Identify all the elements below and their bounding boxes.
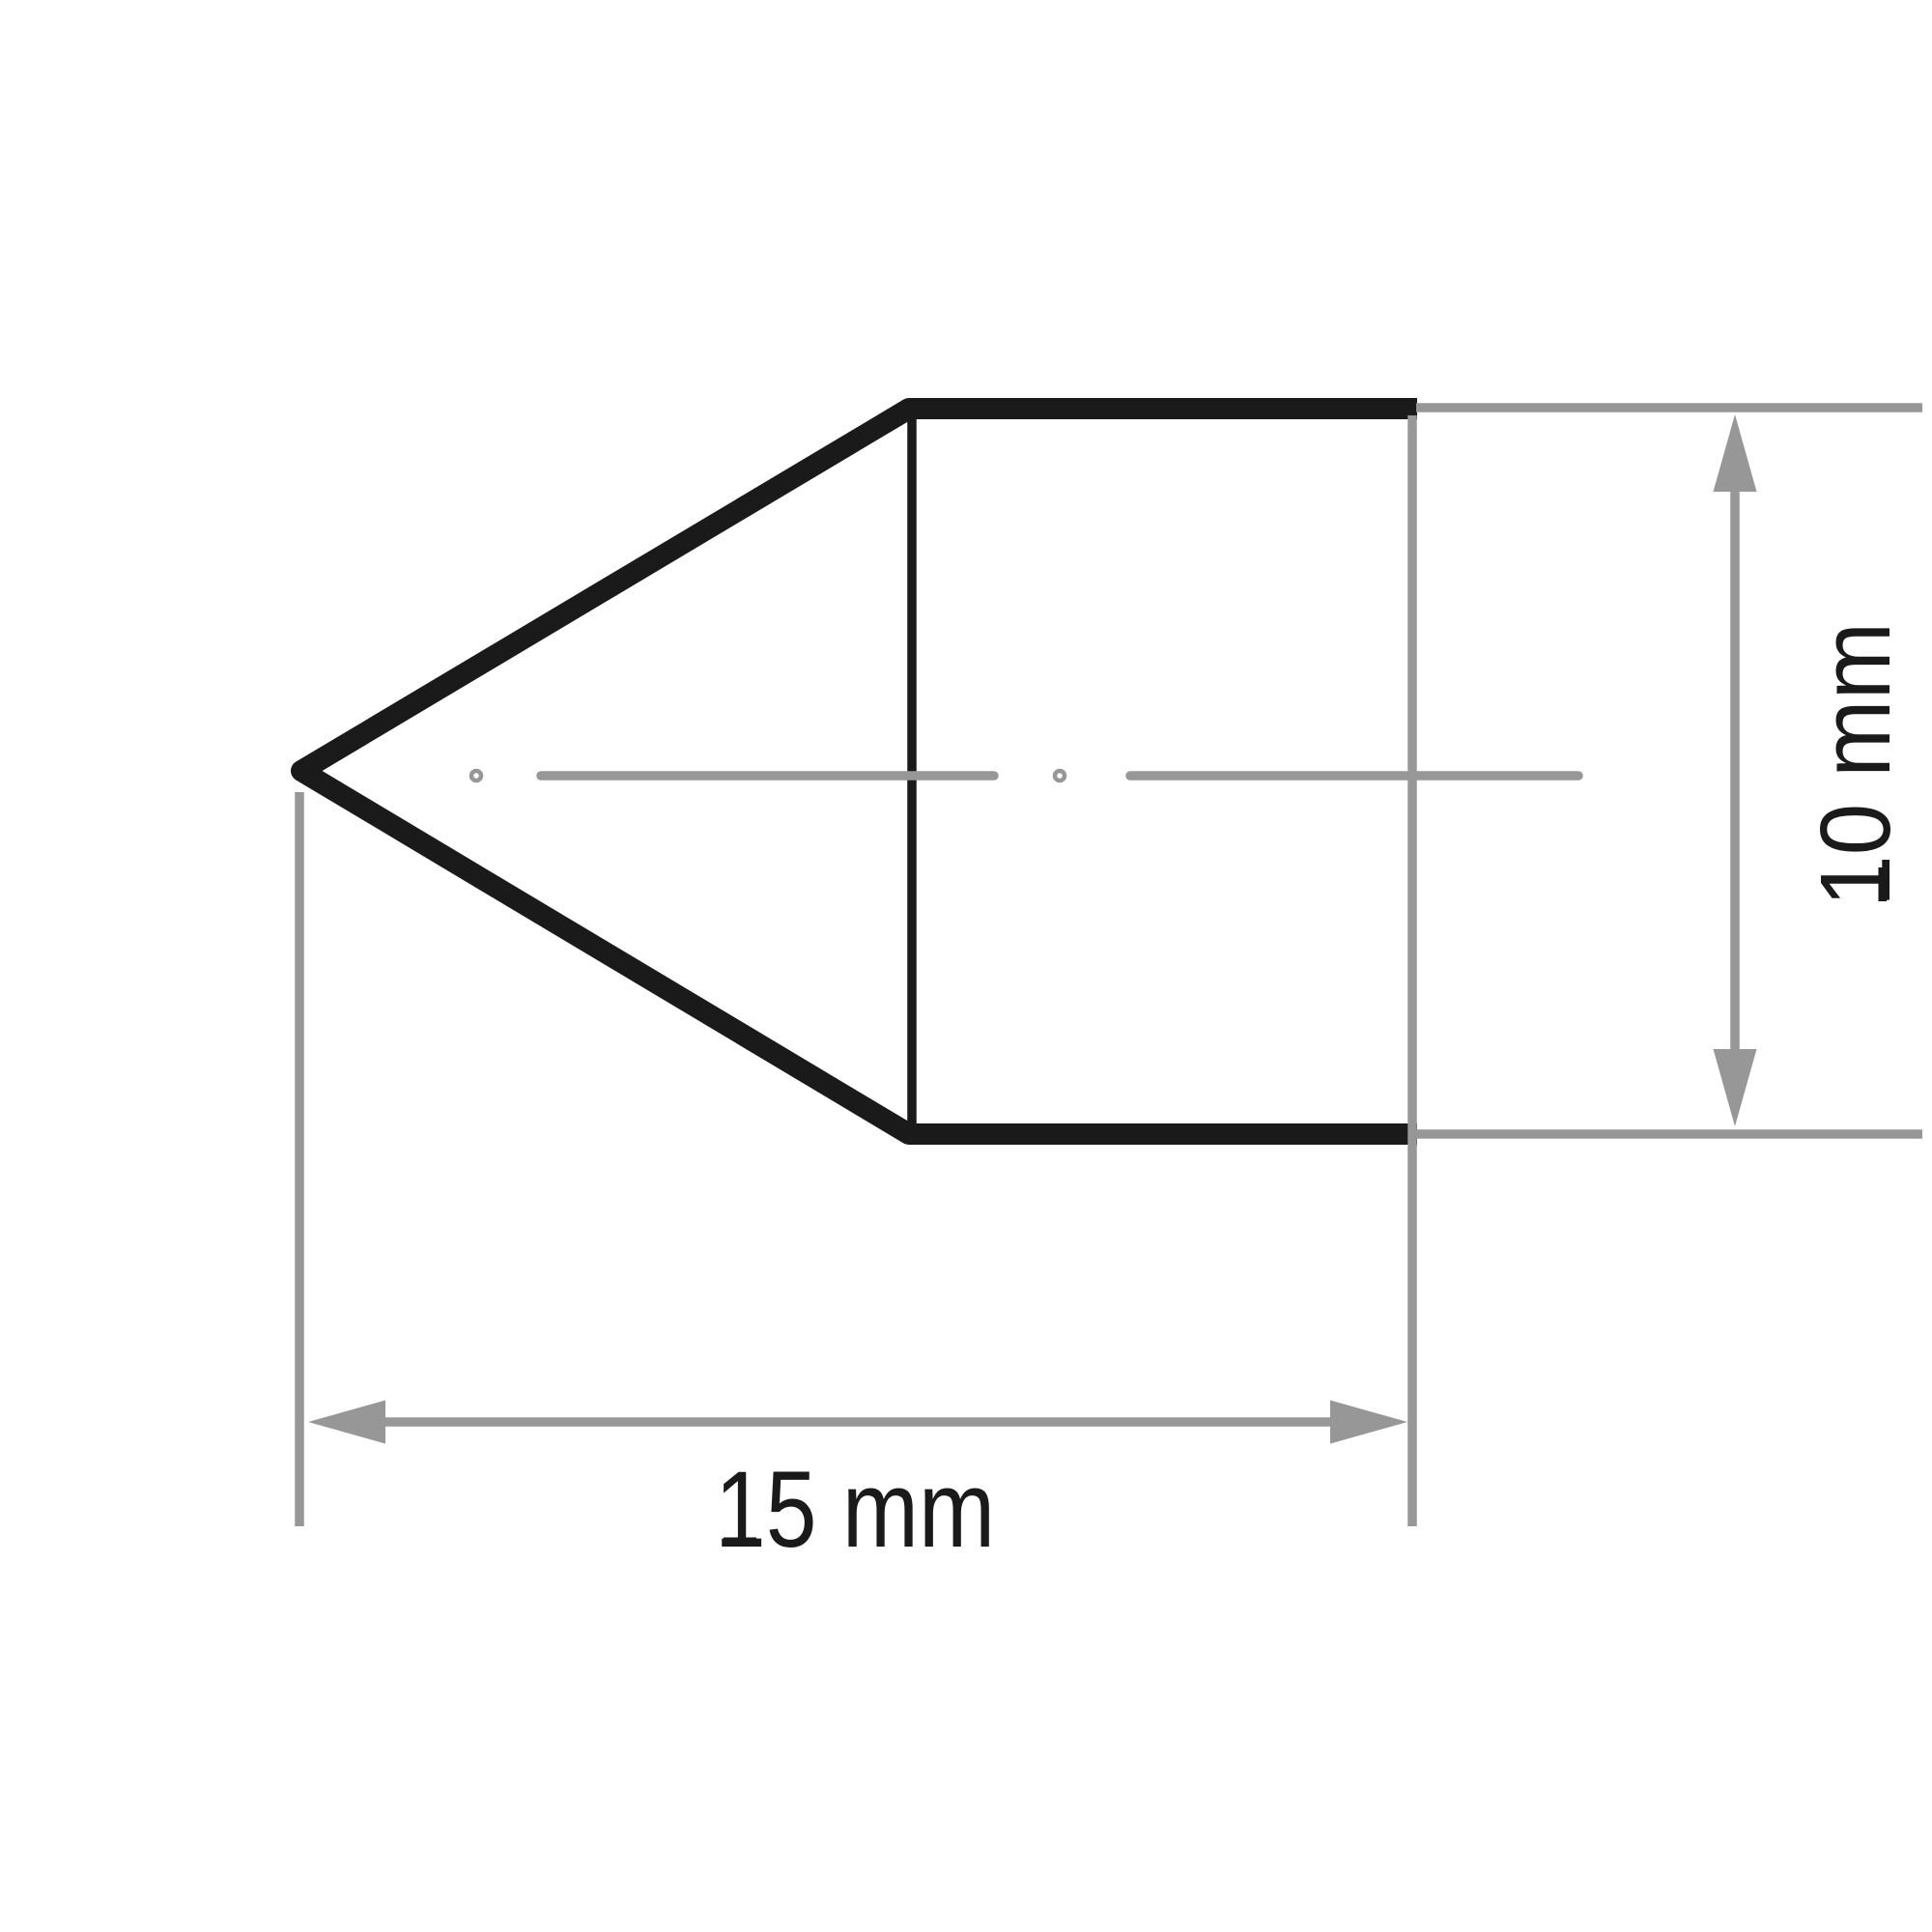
svg-text:10 mm: 10 mm: [1800, 622, 1911, 907]
svg-text:15 mm: 15 mm: [715, 1449, 995, 1570]
